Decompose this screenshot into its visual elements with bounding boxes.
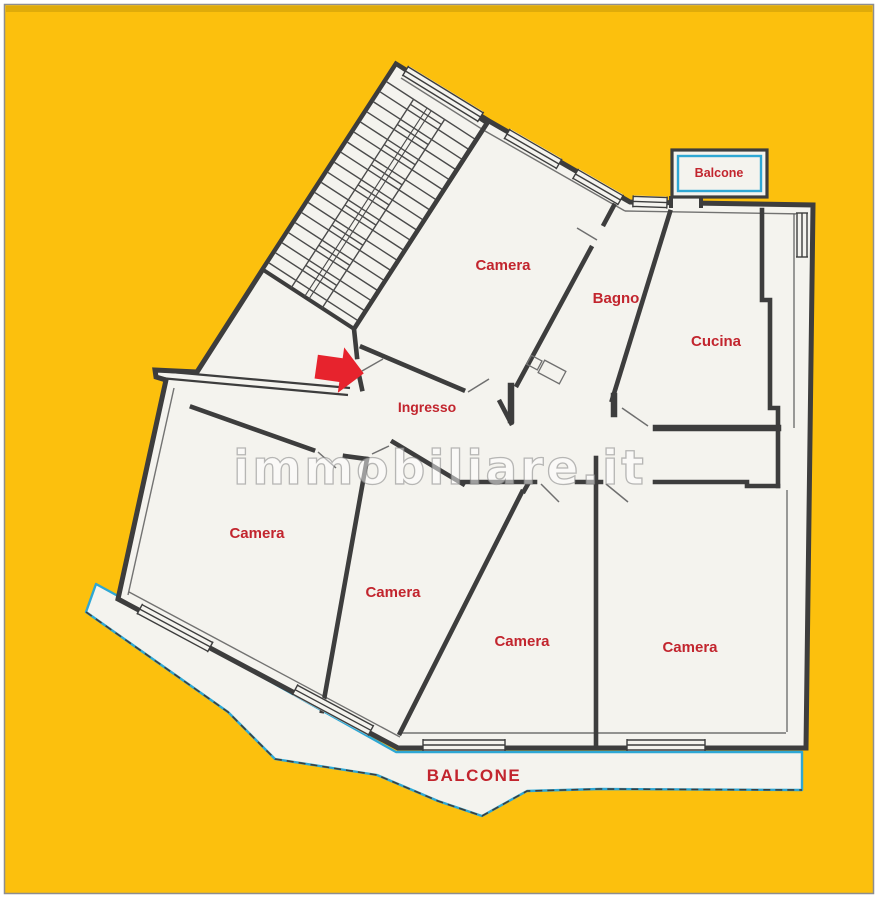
window (423, 739, 505, 751)
room-label-ingresso: Ingresso (398, 399, 456, 415)
window (627, 739, 705, 751)
window (796, 213, 808, 257)
floorplan-svg: immobiliare.it Camera Bagno Cucina Ingre… (0, 0, 881, 900)
watermark: immobiliare.it (233, 441, 647, 496)
label-balcone-bottom: BALCONE (427, 766, 522, 785)
label-balcone-top: Balcone (695, 166, 744, 180)
floorplan-image: immobiliare.it Camera Bagno Cucina Ingre… (0, 0, 881, 900)
room-label-camera-left: Camera (229, 525, 285, 542)
room-label-camera-top: Camera (475, 257, 531, 274)
room-label-camera-bottom-right: Camera (662, 639, 718, 656)
room-label-cucina: Cucina (691, 333, 742, 350)
room-label-camera-bottom-mid: Camera (494, 633, 550, 650)
window (633, 195, 667, 208)
room-label-camera-mid: Camera (365, 584, 421, 601)
room-label-bagno: Bagno (593, 290, 640, 307)
top-scan-band (6, 6, 872, 12)
